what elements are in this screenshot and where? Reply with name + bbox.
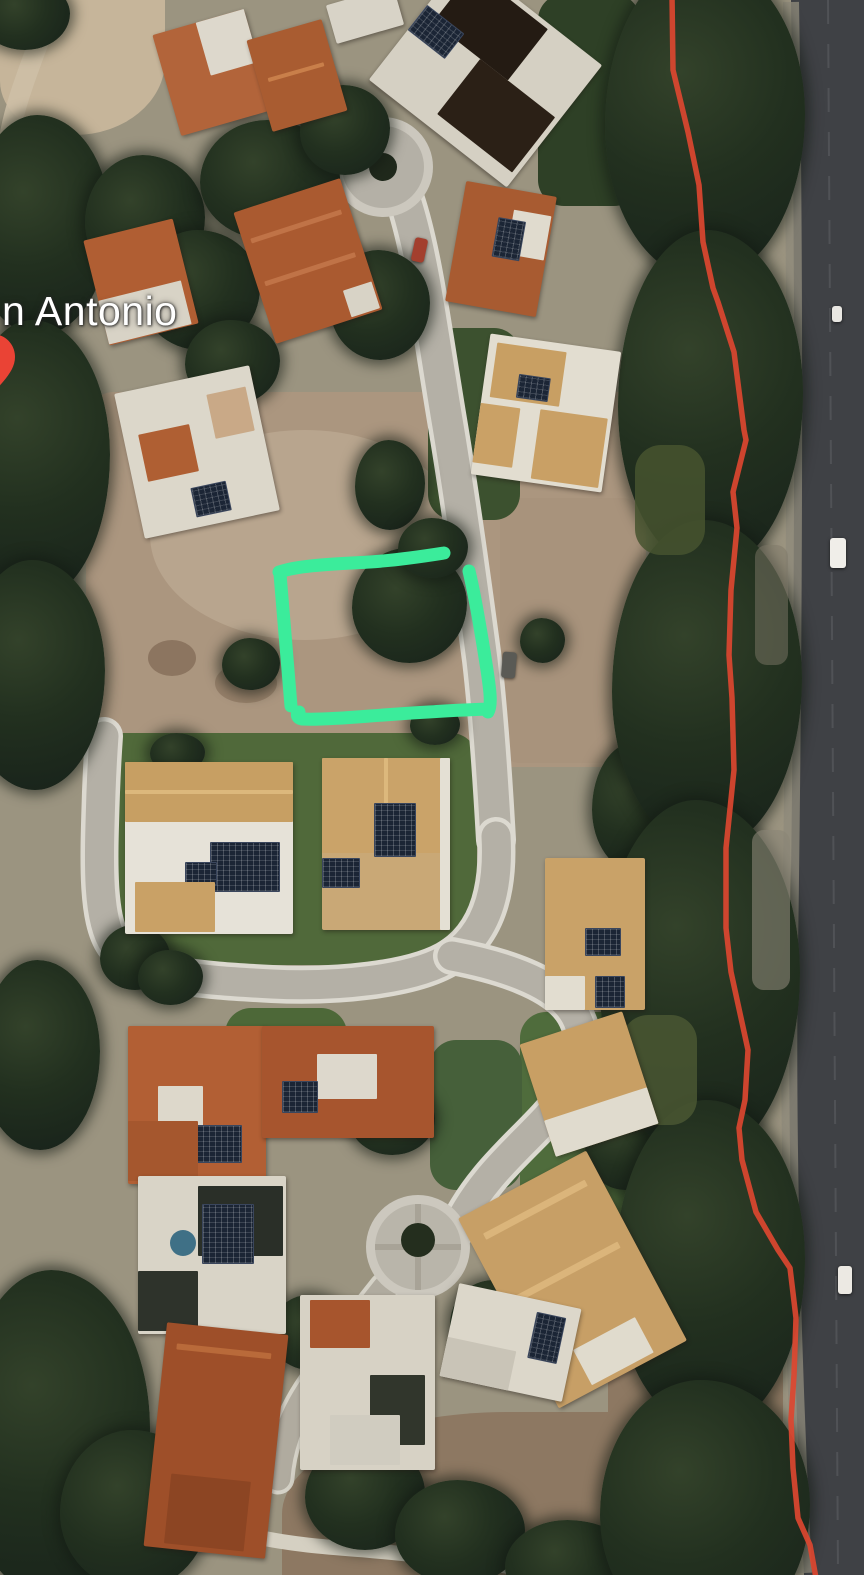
- location-pin-icon[interactable]: [0, 332, 20, 396]
- drawn-boundary-line: [672, 0, 816, 1575]
- annotation-layer: [0, 0, 864, 1575]
- place-label[interactable]: n Antonio: [2, 288, 178, 335]
- satellite-map[interactable]: n Antonio: [0, 0, 864, 1575]
- highlighted-lot-outline: [279, 553, 490, 719]
